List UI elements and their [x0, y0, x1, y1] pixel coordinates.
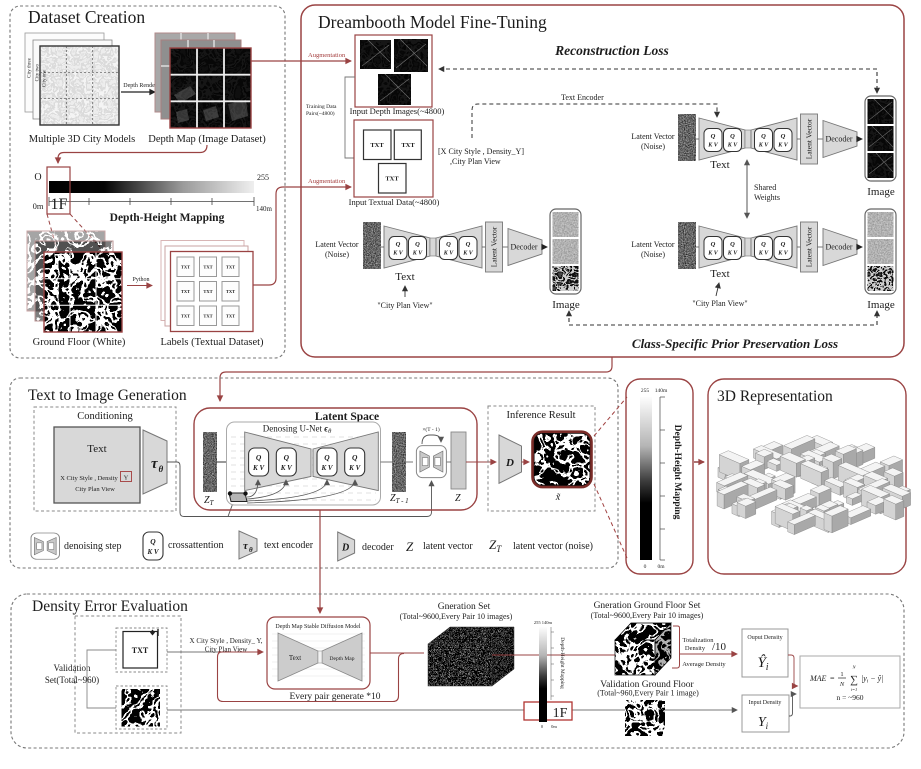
svg-text:Latent Vector: Latent Vector [631, 240, 675, 249]
svg-text:Labels (Textual Dataset): Labels (Textual Dataset) [160, 337, 264, 348]
svg-text:|yi − ŷ|: |yi − ŷ| [861, 674, 883, 685]
svg-text:0m: 0m [33, 201, 44, 211]
svg-text:n = ~960: n = ~960 [836, 693, 863, 702]
svg-text:x̃: x̃ [555, 492, 561, 503]
svg-text:255: 255 [641, 388, 650, 394]
svg-text:Depth-Height Mapping: Depth-Height Mapping [110, 212, 225, 224]
svg-text:TXT: TXT [203, 314, 212, 319]
svg-text:TXT: TXT [401, 142, 415, 149]
svg-text:140m: 140m [256, 205, 273, 213]
svg-text:Image: Image [867, 186, 895, 198]
svg-text:"City Plan View": "City Plan View" [692, 299, 747, 308]
svg-text:255: 255 [257, 173, 269, 182]
svg-text:Validation: Validation [54, 663, 91, 673]
svg-text:Y: Y [124, 475, 129, 482]
svg-text:Latent Vector: Latent Vector [315, 240, 359, 249]
svg-text:Image: Image [867, 299, 895, 311]
svg-text:City three: City three [28, 57, 33, 78]
svg-text:(Total~9600,Every Pair 10 imag: (Total~9600,Every Pair 10 images) [400, 612, 513, 621]
svg-text:Depth Map (Image Dataset): Depth Map (Image Dataset) [148, 134, 266, 145]
svg-text:∑: ∑ [850, 674, 858, 686]
svg-text:Density: Density [685, 645, 706, 652]
svg-text:City Plan View: City Plan View [75, 486, 115, 493]
svg-text:latent vector: latent vector [423, 541, 473, 552]
svg-text:Text to Image Generation: Text to Image Generation [28, 387, 187, 404]
svg-text:1F: 1F [553, 706, 568, 721]
svg-text:City one: City one [43, 69, 48, 87]
svg-text:TXT: TXT [203, 265, 212, 270]
svg-text:decoder: decoder [362, 542, 394, 553]
svg-text:latent vector (noise): latent vector (noise) [513, 541, 593, 552]
svg-text:1: 1 [840, 671, 843, 678]
svg-text:ZT: ZT [204, 495, 215, 507]
svg-text:TXT: TXT [181, 314, 190, 319]
svg-text:Ground Floor (White): Ground Floor (White) [33, 337, 126, 348]
svg-text:0: 0 [541, 724, 544, 729]
svg-text:Shared: Shared [754, 183, 776, 192]
svg-text:0: 0 [644, 564, 647, 570]
svg-text:TXT: TXT [226, 314, 235, 319]
svg-text:(Noise): (Noise) [641, 250, 665, 259]
svg-text:D: D [505, 457, 514, 469]
svg-text:TXT: TXT [203, 289, 212, 294]
svg-text:Python: Python [132, 277, 149, 283]
svg-text:Gneration Ground Floor Set: Gneration Ground Floor Set [594, 601, 701, 611]
svg-text:Reconstruction Loss: Reconstruction Loss [554, 43, 669, 58]
svg-text:3D Representation: 3D Representation [717, 388, 833, 405]
svg-text:1F: 1F [51, 196, 68, 213]
svg-text:Text: Text [87, 443, 106, 455]
svg-text:Inference Result: Inference Result [506, 410, 575, 421]
svg-text:/10: /10 [712, 641, 727, 653]
svg-text:Ouput Density: Ouput Density [747, 635, 782, 641]
svg-text:0m: 0m [551, 724, 557, 729]
svg-text:,City Plan View: ,City Plan View [450, 157, 501, 166]
svg-text:(Total~960,Every Pair 1 image): (Total~960,Every Pair 1 image) [597, 689, 699, 698]
svg-text:Weights: Weights [754, 193, 780, 202]
svg-text:(Noise): (Noise) [325, 250, 349, 259]
svg-text:TXT: TXT [181, 289, 190, 294]
svg-text:Depth Map: Depth Map [330, 656, 355, 662]
svg-text:TXT: TXT [181, 265, 190, 270]
svg-text:Density Error Evaluation: Density Error Evaluation [32, 598, 188, 615]
svg-text:Totalization: Totalization [683, 637, 715, 644]
svg-text:Text: Text [710, 159, 729, 171]
svg-text:Z: Z [406, 539, 414, 554]
svg-text:Text: Text [289, 654, 301, 662]
svg-text:Latent Vector: Latent Vector [631, 132, 675, 141]
svg-text:Average Density: Average Density [682, 661, 726, 668]
svg-text:Denosing U-Net ϵθ: Denosing U-Net ϵθ [263, 424, 332, 436]
svg-text:0m: 0m [657, 564, 665, 570]
svg-text:text encoder: text encoder [264, 540, 314, 551]
svg-text:[X City Style , Density_Y]: [X City Style , Density_Y] [438, 147, 524, 156]
svg-text:Conditioning: Conditioning [77, 411, 133, 422]
svg-text:MAE: MAE [809, 674, 827, 683]
svg-text:Every pair generate *10: Every pair generate *10 [290, 692, 381, 702]
svg-text:Depth-Height Mapping: Depth-Height Mapping [559, 637, 565, 689]
svg-text:"City Plan View": "City Plan View" [377, 301, 432, 310]
svg-text:Multiple 3D City Models: Multiple 3D City Models [29, 134, 135, 145]
svg-text:TXT: TXT [132, 646, 149, 655]
svg-text:X City Style , Density: X City Style , Density [60, 475, 118, 482]
svg-text:Gneration Set: Gneration Set [438, 602, 491, 612]
svg-text:(Total~9600,Every Pair 10 imag: (Total~9600,Every Pair 10 images) [591, 611, 704, 620]
svg-text:Input Density: Input Density [749, 700, 782, 706]
svg-text:Latent Space: Latent Space [315, 411, 379, 423]
svg-text:O: O [34, 172, 41, 183]
svg-text:Z: Z [455, 493, 461, 504]
svg-text:Depth Map Stable Diffusion Mod: Depth Map Stable Diffusion Model [275, 623, 361, 630]
svg-text:Text: Text [395, 271, 414, 283]
svg-text:Class-Specific Prior Preservat: Class-Specific Prior Preservation Loss [632, 336, 838, 351]
svg-text:Augmentation: Augmentation [308, 178, 346, 185]
svg-text:Set(Total~960): Set(Total~960) [45, 675, 99, 685]
svg-text:Text: Text [710, 268, 729, 280]
svg-text:i=1: i=1 [851, 687, 858, 692]
svg-text:Depth Render: Depth Render [123, 83, 157, 89]
svg-text:=: = [830, 674, 835, 683]
svg-text:×(T - 1): ×(T - 1) [422, 426, 440, 433]
svg-text:Pairs(~4800): Pairs(~4800) [306, 110, 335, 117]
svg-text:TXT: TXT [226, 265, 235, 270]
svg-text:140m: 140m [655, 388, 668, 394]
svg-text:D: D [341, 543, 349, 554]
svg-text:ZT: ZT [489, 537, 502, 554]
svg-text:Training Data: Training Data [306, 104, 337, 110]
svg-text:Depth-Height Mapping: Depth-Height Mapping [672, 425, 682, 520]
svg-text:TXT: TXT [226, 289, 235, 294]
svg-text:N: N [839, 681, 845, 688]
svg-text:Dataset Creation: Dataset Creation [28, 7, 145, 27]
svg-text:(Noise): (Noise) [641, 142, 665, 151]
svg-text:denoising step: denoising step [64, 541, 122, 552]
svg-text:ZT - 1: ZT - 1 [390, 493, 409, 505]
svg-text:θ: θ [159, 464, 164, 474]
svg-text:Input Textual Data(~4800): Input Textual Data(~4800) [349, 197, 440, 207]
svg-text:crossattention: crossattention [168, 540, 224, 551]
svg-text:Augmentation: Augmentation [308, 52, 346, 59]
svg-text:TXT: TXT [370, 142, 384, 149]
svg-text:Image: Image [552, 299, 580, 311]
svg-text:Input Depth Images(~4800): Input Depth Images(~4800) [350, 106, 445, 116]
svg-text:255 140m: 255 140m [534, 620, 553, 625]
svg-text:Text Encoder: Text Encoder [561, 93, 604, 102]
svg-text:TXT: TXT [385, 176, 399, 183]
svg-text:θ: θ [249, 546, 253, 554]
svg-text:X City Style , Density_ Y,: X City Style , Density_ Y, [190, 637, 263, 645]
svg-text:Dreambooth Model Fine-Tuning: Dreambooth Model Fine-Tuning [318, 12, 547, 32]
